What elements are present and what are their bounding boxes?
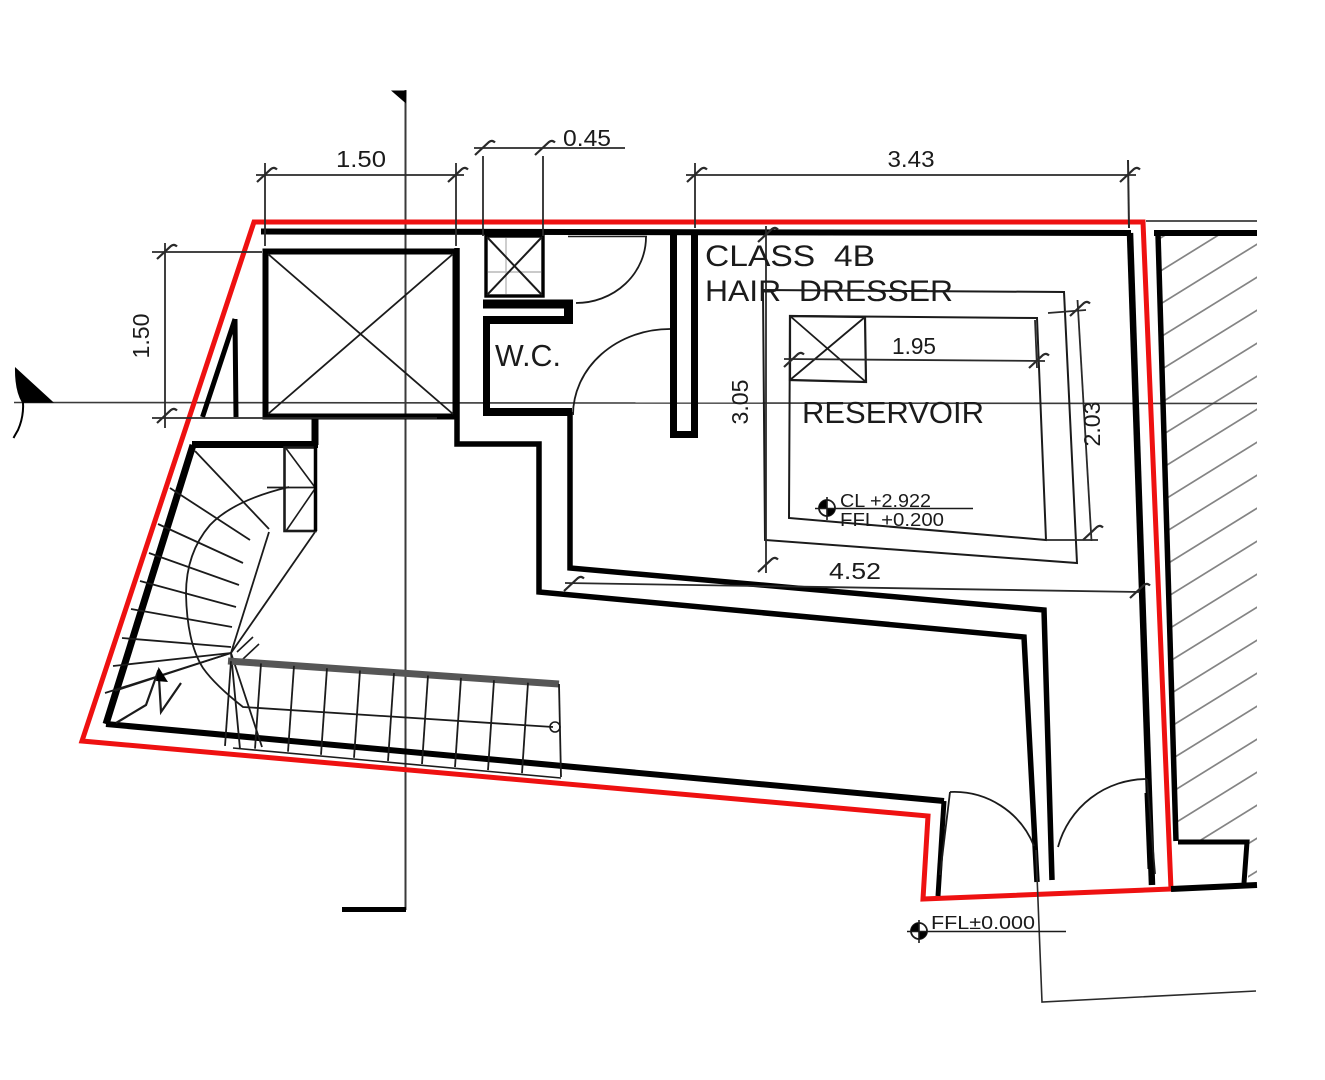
svg-text:FFL +0.200: FFL +0.200 [840,510,944,530]
svg-text:0.45: 0.45 [563,125,611,151]
svg-text:4.52: 4.52 [829,558,881,584]
svg-text:RESERVOIR: RESERVOIR [802,395,984,430]
svg-text:HAIR DRESSER: HAIR DRESSER [705,275,953,308]
svg-text:1.50: 1.50 [128,314,154,359]
svg-text:3.43: 3.43 [888,146,935,172]
svg-text:2.03: 2.03 [1079,402,1105,447]
svg-text:FFL±0.000: FFL±0.000 [931,913,1035,933]
svg-text:1.95: 1.95 [892,333,936,359]
svg-text:CL +2.922: CL +2.922 [840,491,931,511]
svg-text:1.50: 1.50 [336,146,386,172]
svg-text:3.05: 3.05 [727,380,753,425]
svg-text:CLASS 4B: CLASS 4B [705,240,875,273]
svg-text:W.C.: W.C. [495,338,561,373]
